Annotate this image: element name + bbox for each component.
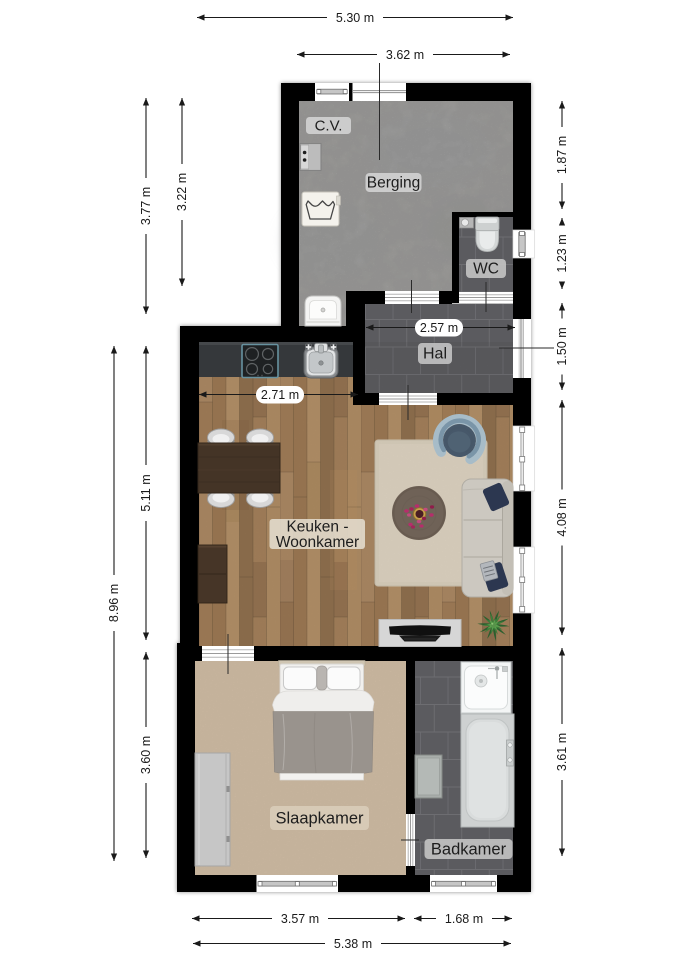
svg-text:2.71 m: 2.71 m — [261, 388, 299, 402]
svg-text:Berging: Berging — [367, 175, 420, 192]
svg-text:5.38 m: 5.38 m — [334, 937, 372, 951]
svg-text:Badkamer: Badkamer — [431, 841, 507, 859]
svg-text:Slaapkamer: Slaapkamer — [275, 810, 364, 828]
svg-text:3.61 m: 3.61 m — [555, 733, 569, 771]
svg-text:1.87 m: 1.87 m — [555, 136, 569, 174]
svg-text:1.68 m: 1.68 m — [445, 912, 483, 926]
svg-text:3.60 m: 3.60 m — [139, 736, 153, 774]
svg-text:C.V.: C.V. — [315, 118, 343, 135]
svg-text:Hal: Hal — [423, 346, 447, 363]
svg-text:2.57 m: 2.57 m — [420, 321, 458, 335]
svg-text:3.62 m: 3.62 m — [386, 48, 424, 62]
svg-text:3.77 m: 3.77 m — [139, 187, 153, 225]
svg-text:3.22 m: 3.22 m — [175, 173, 189, 211]
svg-text:WC: WC — [473, 261, 499, 278]
svg-text:1.50 m: 1.50 m — [555, 327, 569, 365]
svg-text:Keuken -: Keuken - — [286, 519, 348, 536]
svg-text:Woonkamer: Woonkamer — [276, 534, 359, 551]
svg-text:5.30 m: 5.30 m — [336, 11, 374, 25]
svg-text:4.08 m: 4.08 m — [555, 498, 569, 536]
svg-text:5.11 m: 5.11 m — [139, 474, 153, 511]
svg-text:8.96 m: 8.96 m — [107, 584, 121, 622]
svg-text:1.23 m: 1.23 m — [555, 234, 569, 272]
svg-text:3.57 m: 3.57 m — [281, 912, 319, 926]
